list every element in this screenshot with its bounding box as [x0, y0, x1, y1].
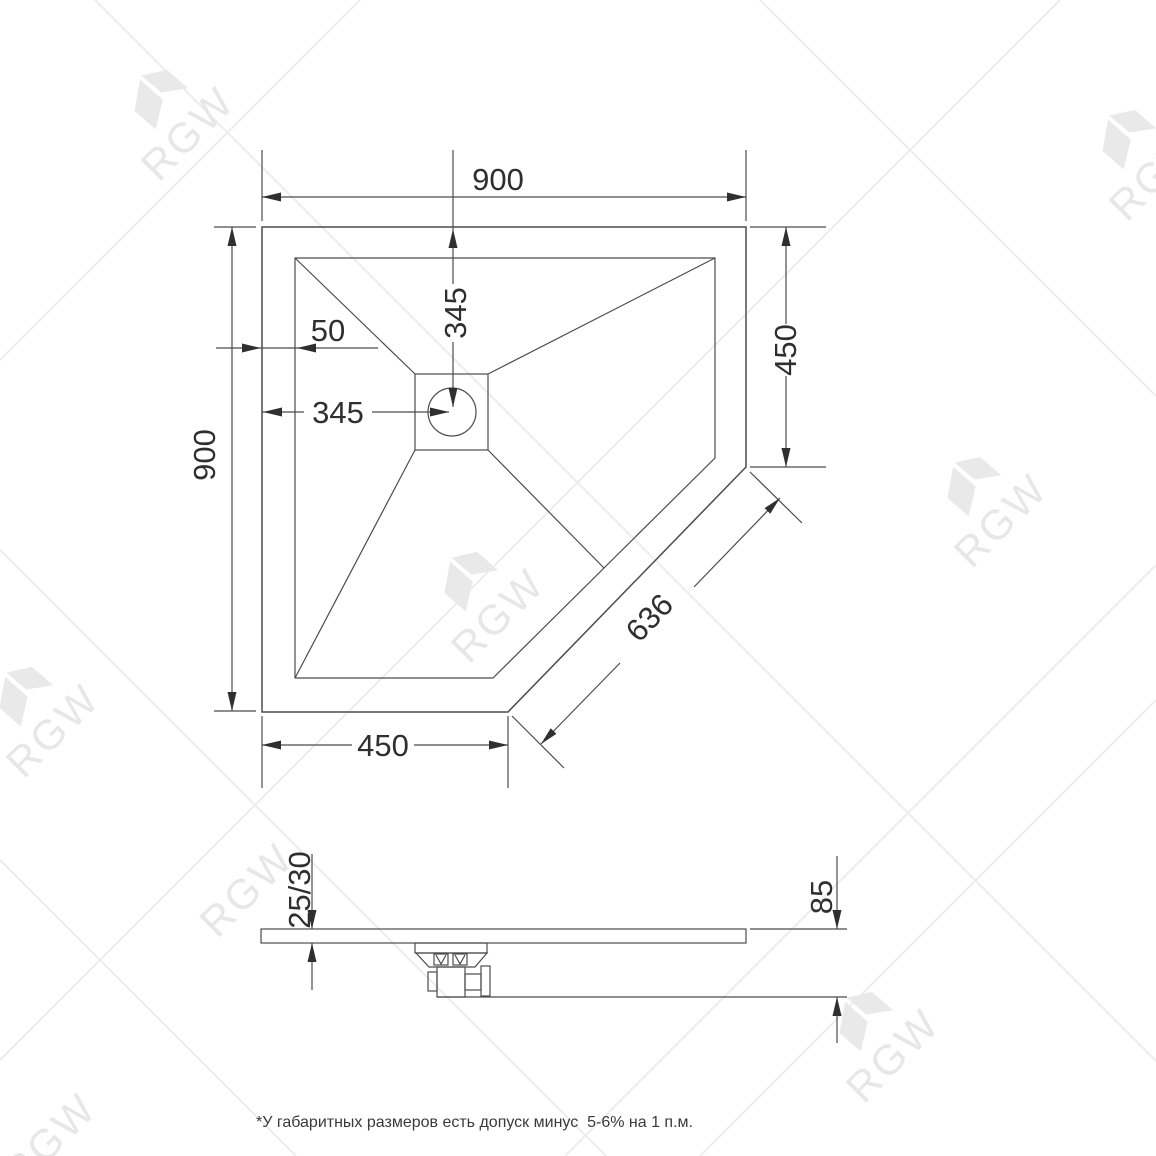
watermark-text: RGW — [0, 1084, 106, 1156]
watermark-logo: RGW — [801, 964, 949, 1112]
dim-label-chamfer: 636 — [619, 587, 680, 649]
watermark-logo: RGW — [909, 429, 1057, 577]
watermark-diagonal-line — [0, 0, 360, 360]
arrowhead-down — [449, 388, 458, 407]
arrowhead-up — [782, 227, 791, 246]
drain-outlet-connector — [465, 974, 481, 990]
dim-label-height: 85 — [804, 880, 839, 914]
dim-label-right-side: 450 — [768, 324, 803, 376]
arrowhead-right — [727, 193, 746, 202]
arrowhead-left — [263, 408, 282, 417]
drain-flange — [415, 943, 487, 953]
dim-label-left-height: 900 — [187, 429, 222, 481]
side-view: 25/30 85 — [261, 851, 847, 1043]
plan-view: 900 900 345 345 — [187, 150, 826, 788]
drain-notch — [455, 955, 465, 964]
tray-slab-profile — [261, 929, 746, 943]
arrowhead-right — [430, 408, 449, 417]
dim-drain-from-top-345: 345 — [438, 150, 473, 407]
watermark-diagonal-line — [700, 700, 1156, 1156]
dim-drain-from-left-345: 345 — [262, 395, 449, 430]
dim-label-thickness: 25/30 — [282, 851, 317, 929]
arrowhead-up — [308, 943, 317, 962]
arrowhead-left — [262, 741, 281, 750]
dim-label-bottom-side: 450 — [357, 728, 409, 763]
dim-rim-50: 50 — [216, 313, 378, 353]
watermark-logo: RGW — [0, 639, 109, 787]
watermark-logo: RGW — [1064, 82, 1156, 230]
dim-top-900: 900 — [262, 150, 746, 221]
dim-left-900: 900 — [187, 227, 256, 711]
arrowhead-up — [449, 229, 458, 248]
drain-outlet-flange — [481, 966, 490, 996]
arrowhead-up — [228, 227, 237, 246]
watermark-layer: RGW RGW RGW RGW RGW RGW RGW RGW — [0, 0, 1156, 1156]
tolerance-footnote: *У габаритных размеров есть допуск минус… — [256, 1114, 693, 1131]
arrowhead-left — [262, 193, 281, 202]
arrowhead-right — [489, 741, 508, 750]
watermark-logo: RGW — [0, 1084, 106, 1156]
drain-body-taper — [416, 953, 487, 967]
drawing-svg: RGW RGW RGW RGW RGW RGW RGW RGW — [0, 0, 1156, 1156]
dim-label-rim: 50 — [311, 313, 345, 348]
arrowhead-down — [228, 692, 237, 711]
watermark-logo: RGW — [96, 42, 244, 190]
dim-bottom-450: 450 — [262, 716, 508, 788]
dim-label-top-width: 900 — [472, 162, 524, 197]
drain-notch — [436, 955, 446, 964]
dim-height-85: 85 — [804, 856, 842, 1043]
arrowhead-up — [833, 997, 842, 1016]
dim-label-drain-from-top: 345 — [438, 287, 473, 339]
dim-right-450: 450 — [750, 227, 826, 467]
watermark-diagonal-line — [760, 0, 1156, 396]
dim-chamfer-636: 636 — [512, 472, 802, 768]
arrowhead-down — [782, 448, 791, 467]
watermark-logo: RGW — [406, 524, 554, 672]
drain-assembly-profile — [415, 943, 490, 997]
dim-label-drain-from-left: 345 — [312, 395, 364, 430]
shower-tray-technical-drawing: RGW RGW RGW RGW RGW RGW RGW RGW — [0, 0, 1156, 1156]
dim-thickness-25-30: 25/30 — [282, 851, 317, 990]
arrowhead-right — [242, 344, 261, 353]
